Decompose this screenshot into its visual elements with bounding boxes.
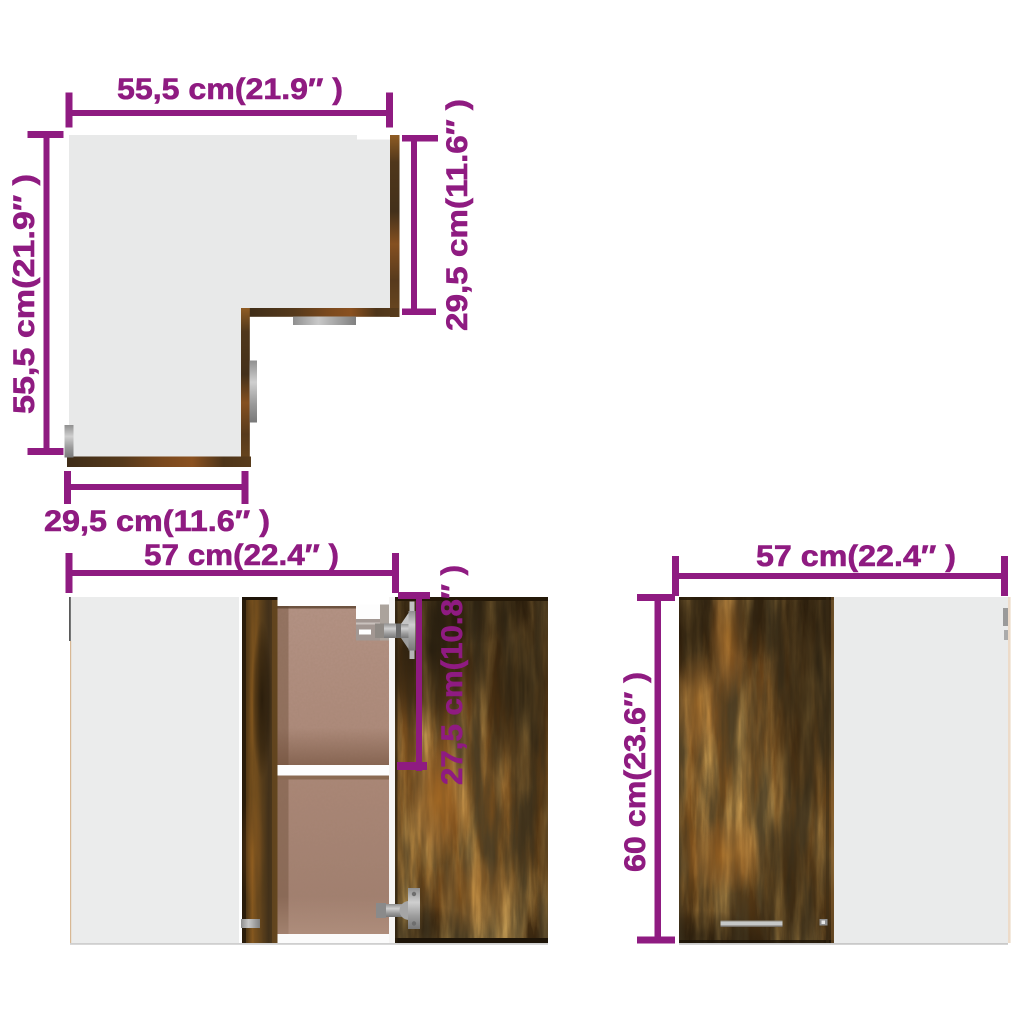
- svg-text:29,5 cm(11.6″ ): 29,5 cm(11.6″ ): [44, 505, 270, 538]
- svg-text:55,5 cm(21.9″ ): 55,5 cm(21.9″ ): [8, 174, 41, 414]
- svg-text:29,5 cm(11.6″ ): 29,5 cm(11.6″ ): [441, 99, 474, 331]
- svg-text:60 cm(23.6″ ): 60 cm(23.6″ ): [619, 672, 652, 872]
- svg-text:55,5 cm(21.9″ ): 55,5 cm(21.9″ ): [117, 73, 343, 106]
- svg-text:57 cm(22.4″ ): 57 cm(22.4″ ): [144, 539, 339, 572]
- svg-text:57 cm(22.4″ ): 57 cm(22.4″ ): [756, 540, 956, 573]
- svg-text:27,5 cm(10.8″ ): 27,5 cm(10.8″ ): [436, 565, 469, 785]
